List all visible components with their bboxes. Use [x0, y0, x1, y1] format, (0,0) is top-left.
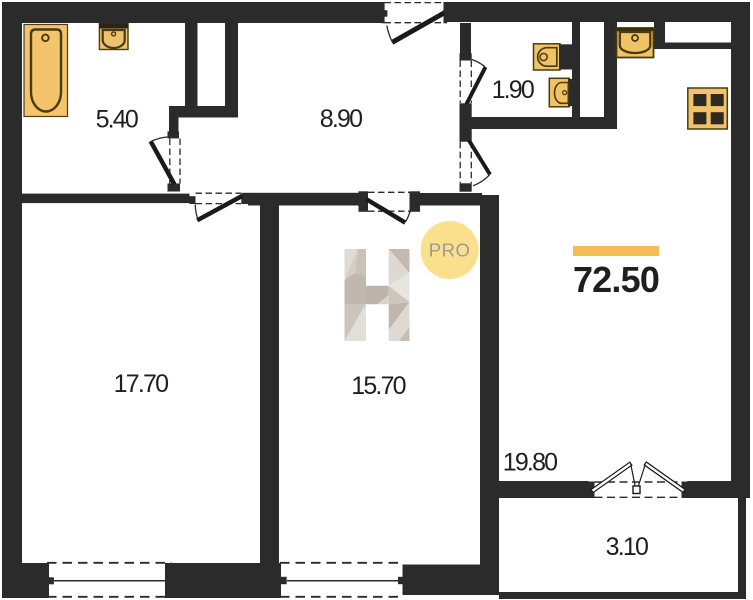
svg-text:8.90: 8.90 — [320, 105, 362, 133]
svg-text:72.50: 72.50 — [573, 259, 659, 300]
svg-text:17.70: 17.70 — [114, 370, 168, 398]
svg-text:19.80: 19.80 — [503, 449, 557, 477]
svg-text:PRO: PRO — [429, 240, 471, 261]
svg-text:3.10: 3.10 — [606, 533, 648, 561]
svg-text:5.40: 5.40 — [96, 105, 138, 133]
svg-text:15.70: 15.70 — [351, 372, 405, 400]
svg-text:1.90: 1.90 — [492, 76, 534, 104]
